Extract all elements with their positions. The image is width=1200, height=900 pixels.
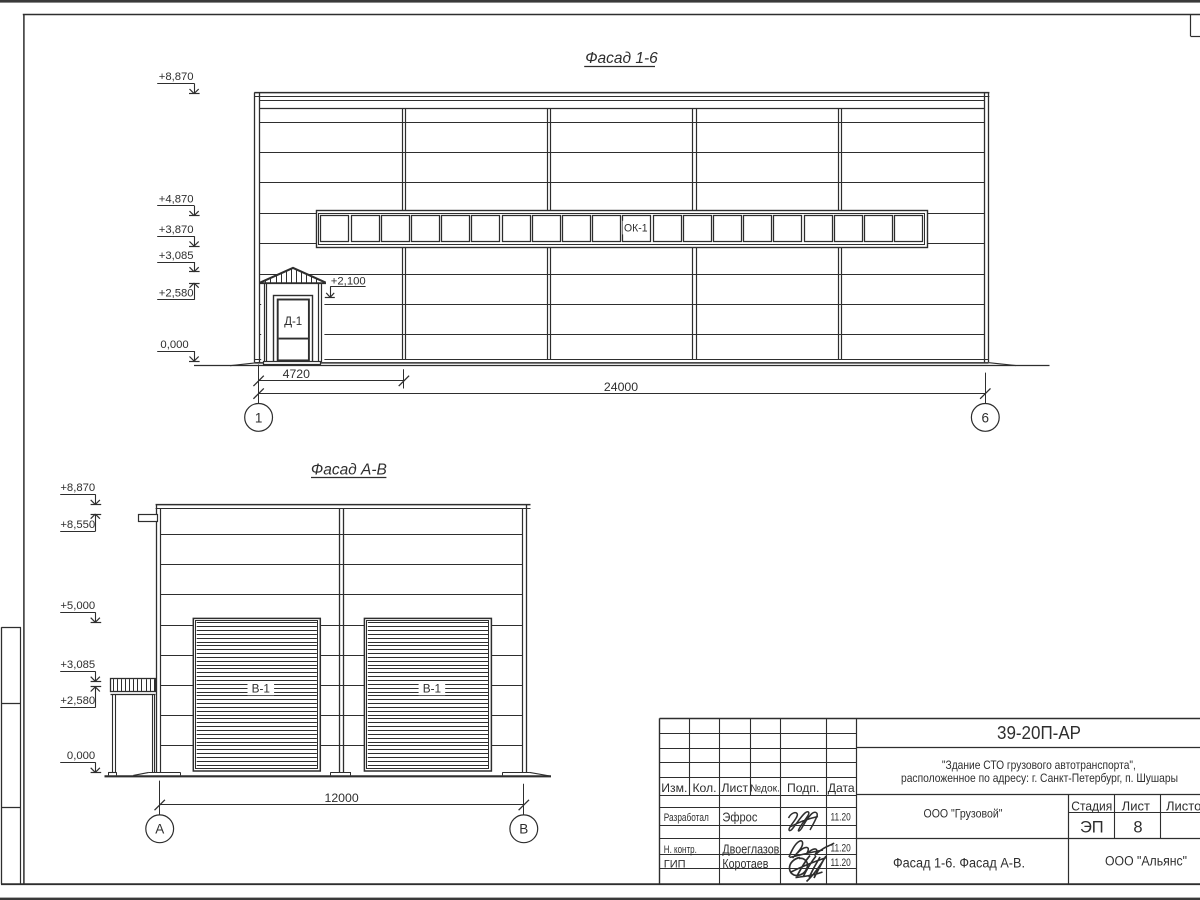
- svg-text:12000: 12000: [324, 791, 358, 805]
- svg-text:+2,100: +2,100: [331, 276, 366, 288]
- svg-text:Кол.: Кол.: [692, 781, 716, 795]
- svg-text:В-1: В-1: [252, 682, 270, 696]
- svg-text:В: В: [519, 822, 528, 837]
- svg-text:Двоеглазов: Двоеглазов: [722, 842, 779, 856]
- svg-text:0,000: 0,000: [160, 339, 188, 351]
- svg-text:Фасад А-В: Фасад А-В: [311, 461, 387, 478]
- svg-text:А: А: [155, 822, 164, 837]
- svg-text:ГИП: ГИП: [664, 859, 686, 871]
- svg-text:Изм.: Изм.: [661, 781, 687, 795]
- svg-text:№док.: №док.: [750, 784, 780, 795]
- svg-text:Подп.: Подп.: [787, 781, 819, 795]
- svg-text:Фасад 1-6. Фасад А-В.: Фасад 1-6. Фасад А-В.: [893, 855, 1025, 871]
- svg-text:+2,580: +2,580: [159, 288, 194, 300]
- svg-text:8: 8: [1133, 818, 1142, 836]
- svg-text:Эфрос: Эфрос: [722, 810, 757, 824]
- svg-text:Листов: Листов: [1166, 798, 1200, 813]
- svg-text:ООО "Грузовой": ООО "Грузовой": [924, 806, 1003, 820]
- svg-text:Д-1: Д-1: [284, 316, 302, 328]
- svg-text:ООО "Альянс": ООО "Альянс": [1105, 853, 1187, 869]
- svg-text:24000: 24000: [604, 380, 638, 394]
- svg-text:ЭП: ЭП: [1080, 818, 1104, 836]
- svg-text:6: 6: [982, 410, 990, 425]
- svg-text:ОК-1: ОК-1: [624, 223, 648, 235]
- svg-text:Стадия: Стадия: [1071, 798, 1112, 813]
- svg-text:Н. контр.: Н. контр.: [664, 844, 697, 856]
- svg-text:11.20: 11.20: [831, 843, 851, 855]
- svg-text:11.20: 11.20: [831, 857, 851, 869]
- svg-text:Фасад 1-6: Фасад 1-6: [585, 50, 658, 67]
- svg-text:+3,085: +3,085: [159, 250, 194, 262]
- svg-text:4720: 4720: [283, 367, 311, 381]
- svg-text:Разработал: Разработал: [664, 812, 709, 824]
- svg-text:+8,870: +8,870: [159, 71, 194, 83]
- svg-text:Коротаев: Коротаев: [722, 857, 768, 871]
- svg-text:11.20: 11.20: [831, 811, 851, 823]
- svg-text:Дата: Дата: [828, 781, 855, 795]
- svg-text:расположенное по адресу: г. Са: расположенное по адресу: г. Санкт-Петерб…: [901, 771, 1178, 785]
- svg-text:+4,870: +4,870: [159, 194, 194, 206]
- svg-text:+8,870: +8,870: [60, 482, 95, 494]
- svg-text:В-1: В-1: [423, 682, 441, 696]
- svg-text:+2,580: +2,580: [60, 695, 95, 707]
- svg-text:Лист: Лист: [1122, 798, 1150, 813]
- svg-text:+5,000: +5,000: [60, 600, 95, 612]
- svg-text:0,000: 0,000: [67, 750, 95, 762]
- svg-text:"Здание СТО грузового автотран: "Здание СТО грузового автотранспорта",: [942, 758, 1136, 772]
- svg-text:1: 1: [255, 410, 263, 425]
- svg-text:+3,085: +3,085: [60, 659, 95, 671]
- svg-text:+3,870: +3,870: [159, 224, 194, 236]
- svg-text:Лист: Лист: [722, 781, 749, 795]
- svg-text:39-20П-АР: 39-20П-АР: [997, 722, 1081, 743]
- svg-text:+8,550: +8,550: [60, 519, 95, 531]
